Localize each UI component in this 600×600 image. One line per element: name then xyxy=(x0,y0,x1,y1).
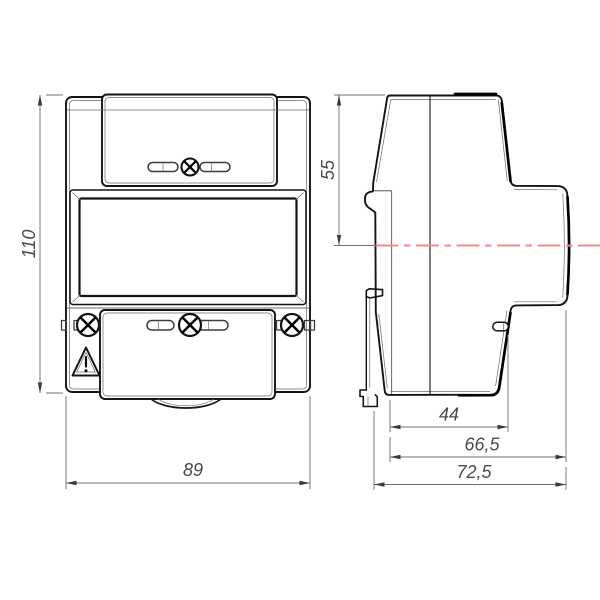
terminal-screw-right-icon xyxy=(281,314,303,336)
top-phillips-screw-icon xyxy=(182,159,199,176)
dimension-label-72-5: 72,5 xyxy=(456,462,492,482)
dimension-label-110: 110 xyxy=(19,230,39,259)
side-view xyxy=(360,94,569,407)
dimension-label-55: 55 xyxy=(318,159,338,180)
terminal-screw-center-icon xyxy=(179,314,201,336)
latch-pin xyxy=(493,322,509,331)
dimension-label-89: 89 xyxy=(183,460,203,480)
dimension-label-66-5: 66,5 xyxy=(464,435,500,455)
dimension-front-width: 89 xyxy=(66,396,310,489)
drawing-canvas: 110 89 55 44 66,5 xyxy=(0,0,600,600)
terminal-screw-left-icon xyxy=(77,314,99,336)
dimension-label-44: 44 xyxy=(439,405,459,425)
dimension-front-height: 110 xyxy=(19,95,63,393)
front-view xyxy=(62,95,315,409)
technical-drawing: 110 89 55 44 66,5 xyxy=(0,0,600,600)
bottom-cable-bump xyxy=(151,399,221,408)
